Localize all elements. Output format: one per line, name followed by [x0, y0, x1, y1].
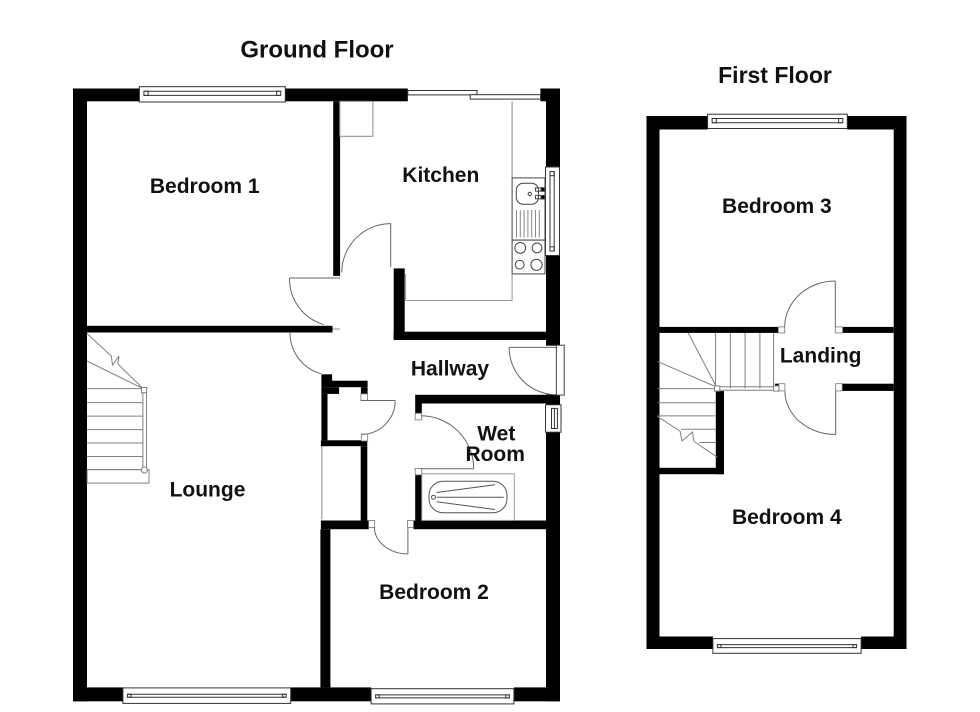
svg-text:Kitchen: Kitchen: [402, 164, 479, 187]
svg-text:Ground Floor: Ground Floor: [240, 37, 393, 64]
svg-text:Wet: Wet: [477, 423, 515, 446]
svg-text:First Floor: First Floor: [718, 62, 832, 88]
svg-text:Landing: Landing: [780, 345, 862, 368]
svg-text:Hallway: Hallway: [411, 358, 490, 381]
svg-text:Lounge: Lounge: [170, 479, 246, 502]
svg-text:Bedroom 2: Bedroom 2: [379, 581, 489, 604]
svg-text:Bedroom 3: Bedroom 3: [722, 195, 832, 218]
svg-text:Bedroom 1: Bedroom 1: [150, 175, 260, 198]
svg-text:Bedroom 4: Bedroom 4: [732, 506, 842, 529]
svg-text:Room: Room: [465, 443, 525, 466]
